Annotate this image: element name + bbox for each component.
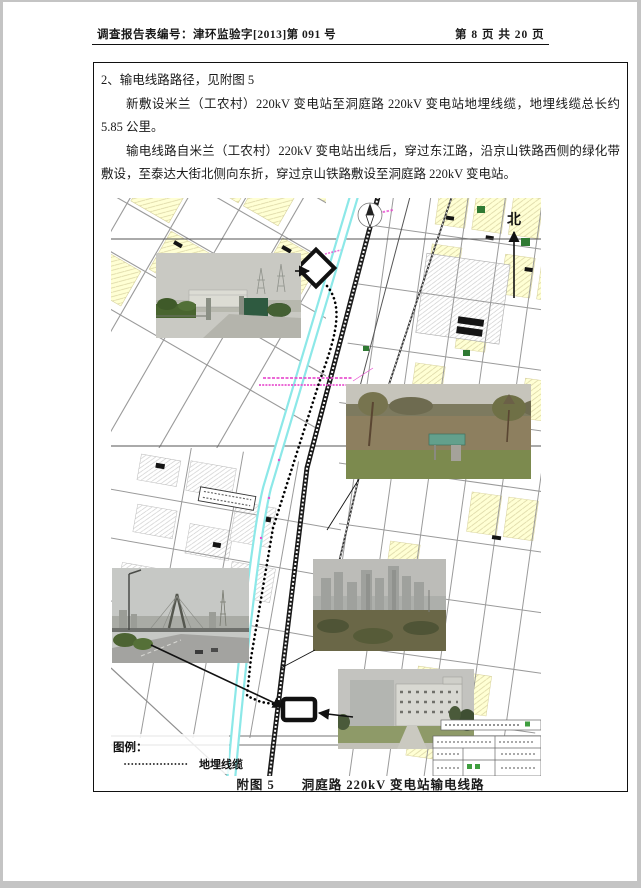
map-legend: 图例： 地埋线缆 [111,734,243,774]
scanned-report-page: { "header": { "report_no": "调查报告表编号：津环监验… [0,0,641,888]
content-box: 2、输电线路路径，见附图 5 新敷设米兰（工农村）220kV 变电站至洞庭路 2… [93,62,628,792]
substation-marker-dongting [283,699,315,720]
header-report-number: 调查报告表编号：津环监验字[2013]第 091 号 [97,26,336,42]
photo-city-skyline [313,559,446,651]
map-title-block [433,720,541,776]
body-paragraph-1: 新敷设米兰（工农村）220kV 变电站至洞庭路 220kV 变电站地埋线缆，地埋… [101,93,620,140]
photo-greenbelt-field [346,384,541,479]
route-map-figure: 北 [111,198,541,776]
figure-caption: 附图 5 洞庭路 220kV 变电站输电线路 [94,774,627,793]
map-svg: 北 [111,198,541,776]
header-page-number: 第 8 页 共 20 页 [455,26,545,42]
page: 调查报告表编号：津环监验字[2013]第 091 号 第 8 页 共 20 页 … [3,2,637,881]
photo-road-bridge [112,568,249,663]
legend-title: 图例： [113,740,148,754]
legend-label-buried-cable: 地埋线缆 [199,757,243,771]
compass-icon [358,203,382,227]
photo-substation-gate [156,253,301,338]
north-label: 北 [507,212,521,228]
section-heading: 2、输电线路路径，见附图 5 [101,69,620,93]
body-text: 2、输电线路路径，见附图 5 新敷设米兰（工农村）220kV 变电站至洞庭路 2… [101,69,620,187]
header-rule [92,44,549,45]
body-paragraph-2: 输电线路自米兰（工农村）220kV 变电站出线后，穿过东江路，沿京山铁路西侧的绿… [101,140,620,187]
